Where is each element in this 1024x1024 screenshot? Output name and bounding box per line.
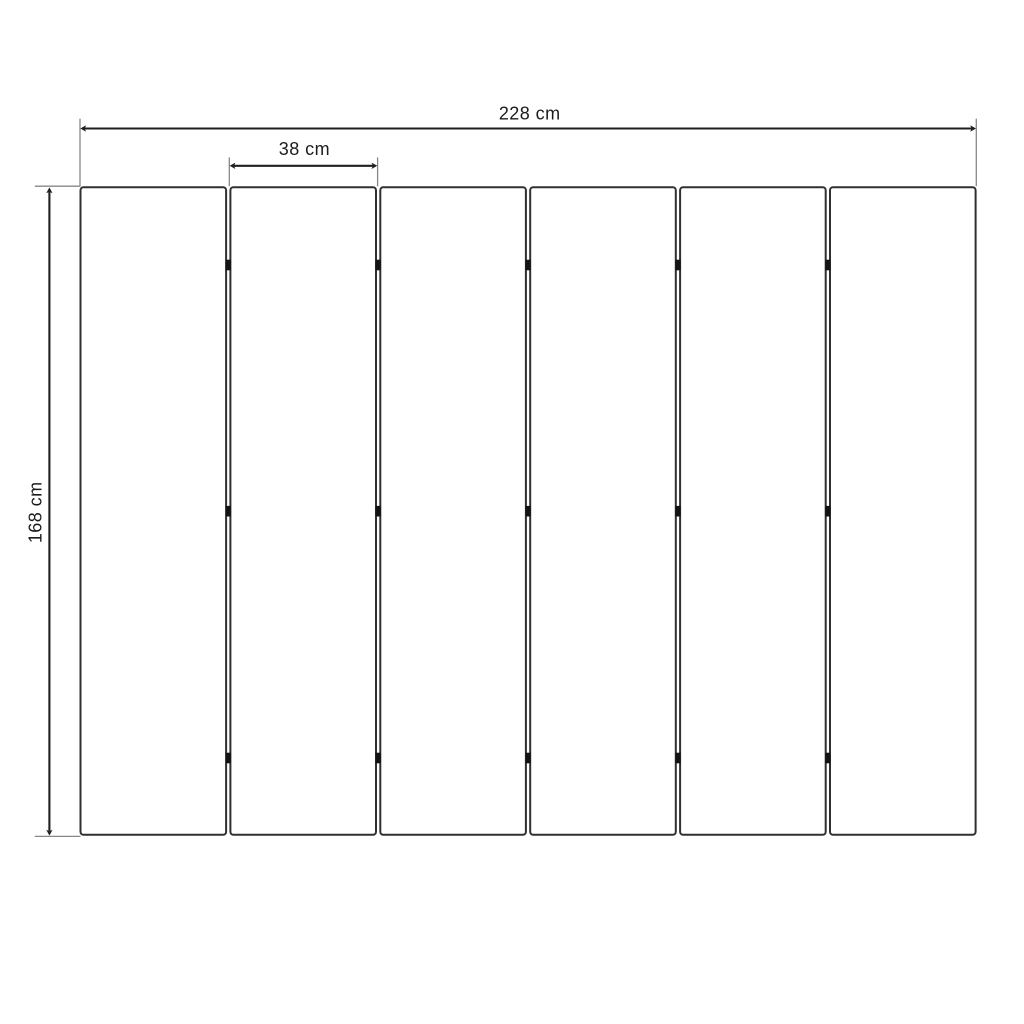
svg-text:38 cm: 38 cm bbox=[279, 139, 330, 159]
svg-text:228 cm: 228 cm bbox=[499, 104, 561, 124]
svg-text:168 cm: 168 cm bbox=[25, 481, 45, 543]
